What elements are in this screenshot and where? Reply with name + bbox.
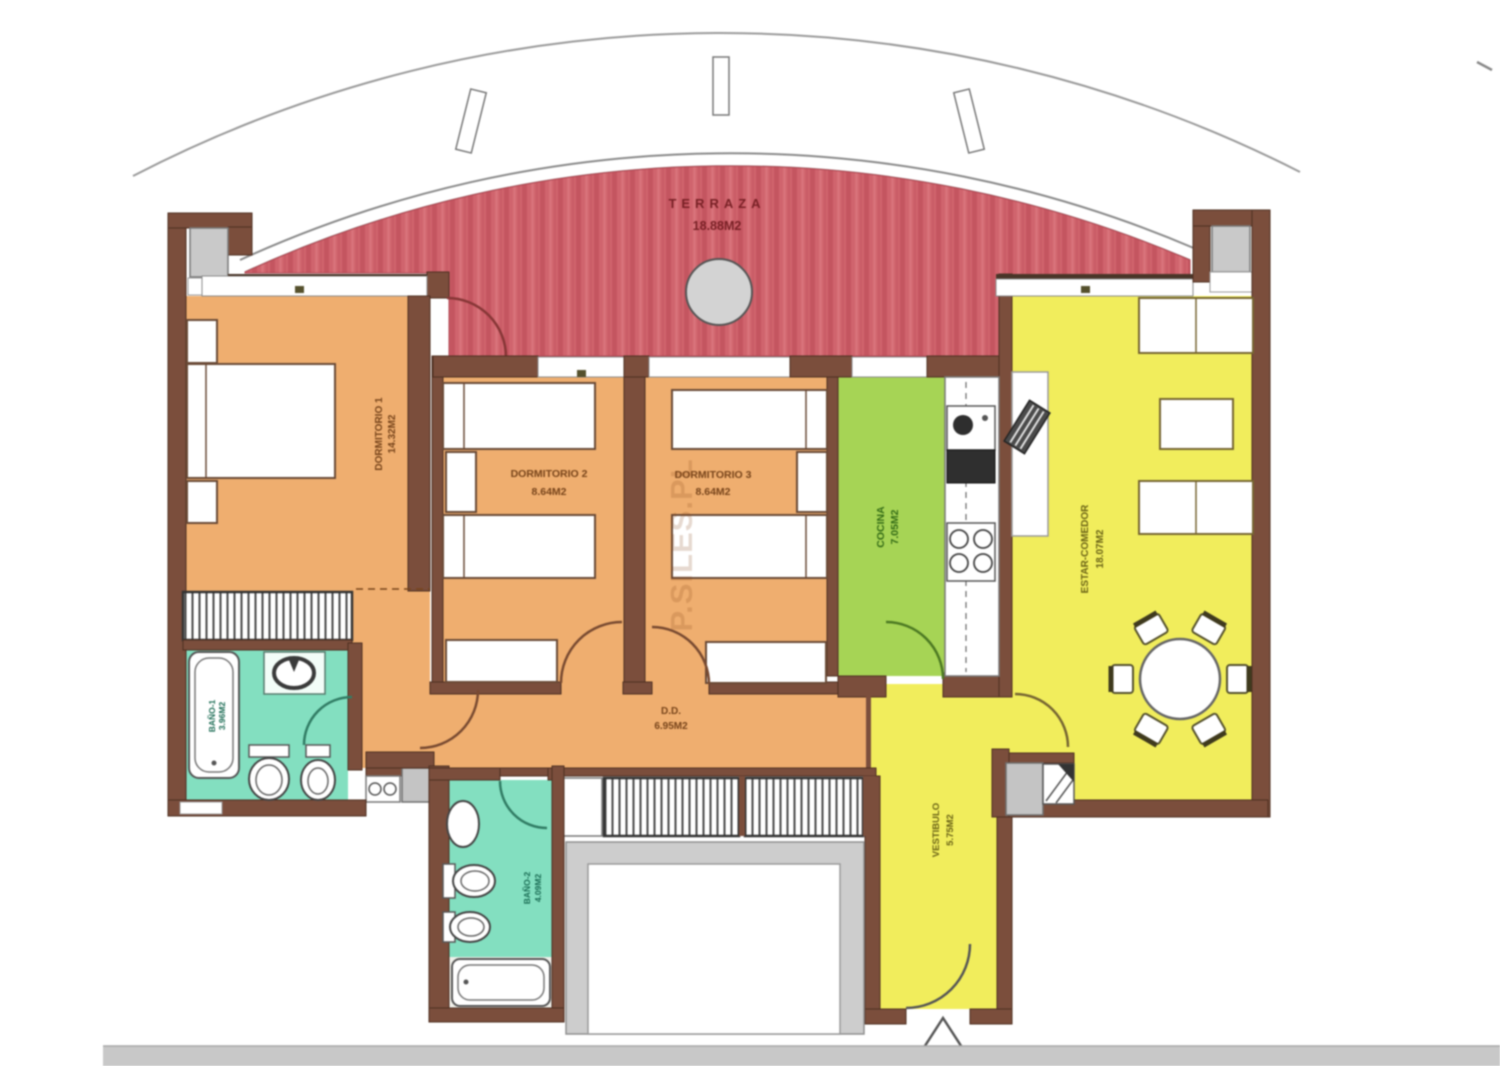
svg-text:5.75M2: 5.75M2 xyxy=(945,814,956,846)
svg-text:18.07M2: 18.07M2 xyxy=(1095,529,1106,568)
svg-text:4.09M2: 4.09M2 xyxy=(533,874,543,903)
svg-text:18.88M2: 18.88M2 xyxy=(693,219,742,233)
svg-text:ESTAR-COMEDOR: ESTAR-COMEDOR xyxy=(1080,504,1091,593)
svg-text:COCINA: COCINA xyxy=(875,506,887,548)
svg-text:6.95M2: 6.95M2 xyxy=(654,721,688,732)
svg-text:8.64M2: 8.64M2 xyxy=(695,486,730,498)
svg-text:14.32M2: 14.32M2 xyxy=(387,414,398,453)
svg-text:VESTIBULO: VESTIBULO xyxy=(931,803,942,857)
svg-text:BAÑO-2: BAÑO-2 xyxy=(522,871,532,904)
svg-text:TERRAZA: TERRAZA xyxy=(668,196,765,211)
svg-text:DORMITORIO 2: DORMITORIO 2 xyxy=(511,468,588,480)
svg-text:D.D.: D.D. xyxy=(661,706,681,717)
svg-text:7.05M2: 7.05M2 xyxy=(889,509,901,544)
svg-text:3.96M2: 3.96M2 xyxy=(217,702,227,731)
svg-text:P.SILES.PL: P.SILES.PL xyxy=(664,458,699,631)
svg-text:DORMITORIO 1: DORMITORIO 1 xyxy=(374,397,385,471)
svg-text:8.64M2: 8.64M2 xyxy=(531,486,566,498)
svg-text:BAÑO-1: BAÑO-1 xyxy=(207,699,217,732)
